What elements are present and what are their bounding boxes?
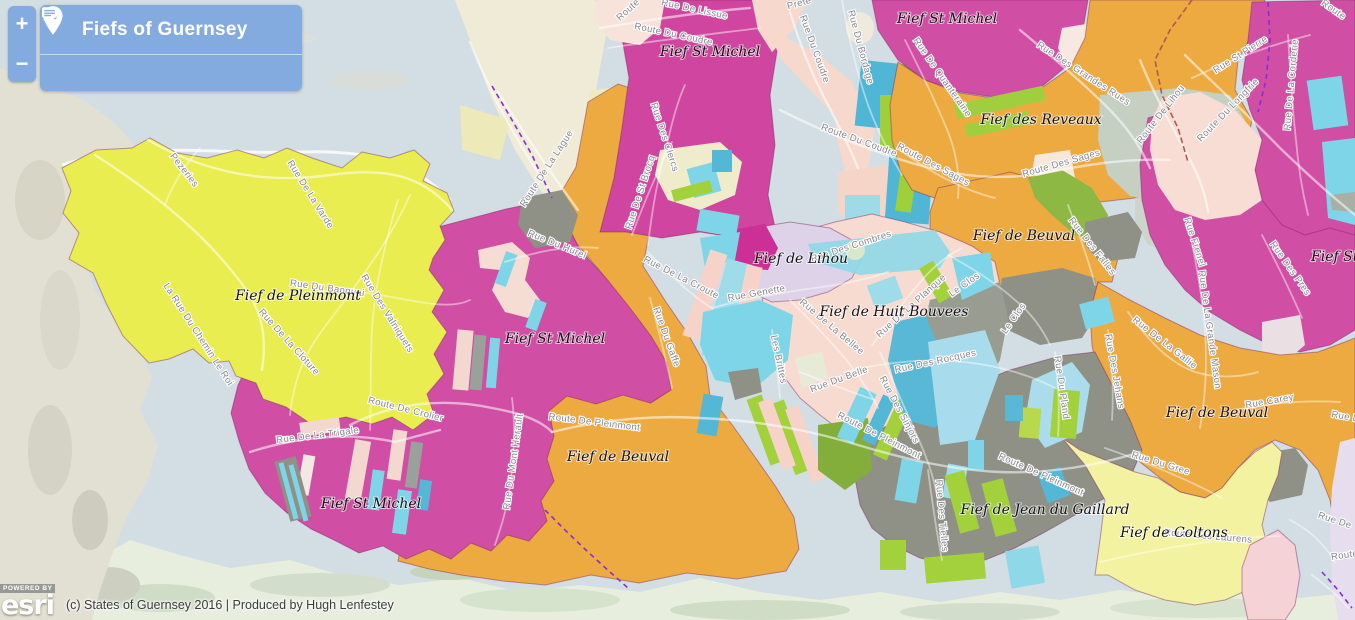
title-panel: Fiefs of Guernsey <box>40 5 302 91</box>
fief-label: Fief de Beuval <box>972 228 1075 244</box>
fief-label: Fief de Huit Bouvees <box>819 304 969 320</box>
fief-label: Fief de Beuval <box>1165 405 1268 421</box>
attribution-bar: POWERED BY esri (c) States of Guernsey 2… <box>0 584 394 620</box>
fief-label: Fief des Reveaux <box>979 112 1101 128</box>
panel-toolbar <box>40 55 302 87</box>
fief-label: Fief de Beuval <box>566 449 669 465</box>
map-app: PezeriesRue De La VardeRue Du BanquaiLa … <box>0 0 1355 620</box>
esri-logo[interactable]: POWERED BY esri <box>0 584 62 620</box>
title-bar: Fiefs of Guernsey <box>40 5 302 55</box>
fief-label: Fief St Michel <box>896 11 997 27</box>
app-title: Fiefs of Guernsey <box>82 19 248 41</box>
fief-label: Fief St Michel <box>320 496 421 512</box>
fief-label: Fief St Michel <box>504 331 605 347</box>
map-canvas[interactable]: PezeriesRue De La VardeRue Du BanquaiLa … <box>0 0 1355 620</box>
zoom-out-button[interactable]: − <box>8 46 36 82</box>
zoom-in-button[interactable]: + <box>8 6 36 42</box>
fief-label: Fief St Michel <box>1310 249 1355 265</box>
fief-label: Fief de Pleinmont <box>234 288 361 304</box>
fief-label: Fief de Lihou <box>753 251 848 267</box>
esri-wordmark: esri <box>1 590 54 620</box>
fief-label: Fief St Michel <box>659 44 760 60</box>
fief-label: Fief de Jean du Gaillard <box>960 502 1130 518</box>
zoom-control[interactable]: + − <box>8 6 36 82</box>
attribution-text: (c) States of Guernsey 2016 | Produced b… <box>66 598 394 612</box>
fief-label: Fief de Coltons <box>1119 525 1228 541</box>
